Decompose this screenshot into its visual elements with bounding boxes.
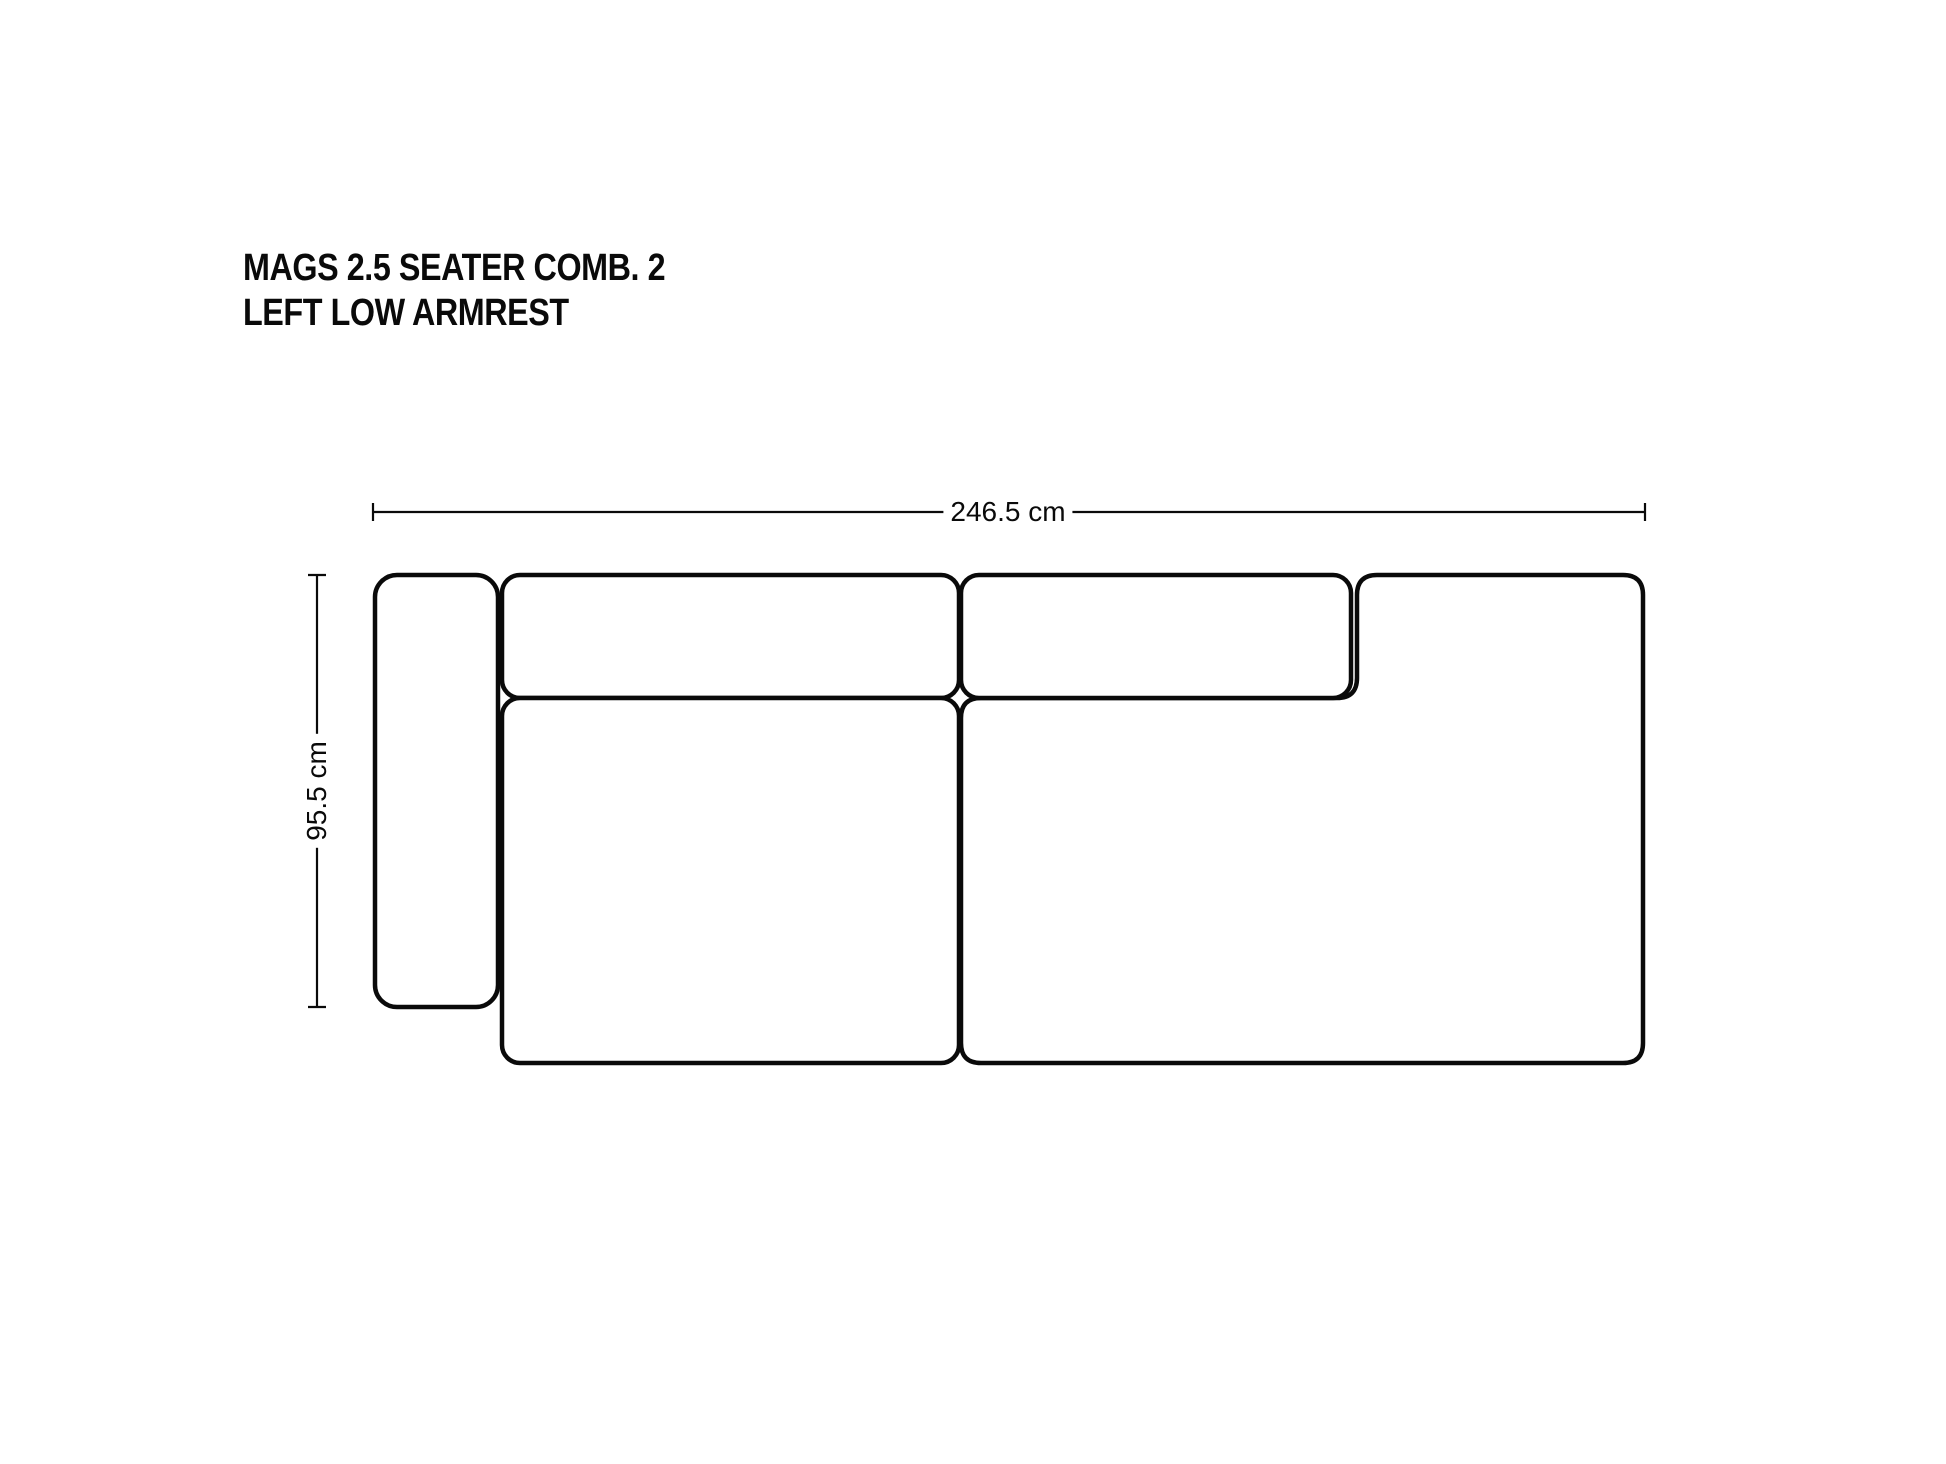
page-background: MAGS 2.5 SEATER COMB. 2 LEFT LOW ARMREST xyxy=(0,0,1946,1464)
depth-dimension-label: 95.5 cm xyxy=(300,734,334,848)
left-low-armrest-outline xyxy=(375,575,498,1007)
width-dimension-label: 246.5 cm xyxy=(943,495,1072,529)
sofa-outline xyxy=(375,575,1643,1063)
sofa-plan-diagram xyxy=(0,0,1946,1464)
left-seat-outline xyxy=(502,698,959,1063)
right-backrest-outline xyxy=(961,575,1351,698)
left-backrest-outline xyxy=(502,575,959,698)
